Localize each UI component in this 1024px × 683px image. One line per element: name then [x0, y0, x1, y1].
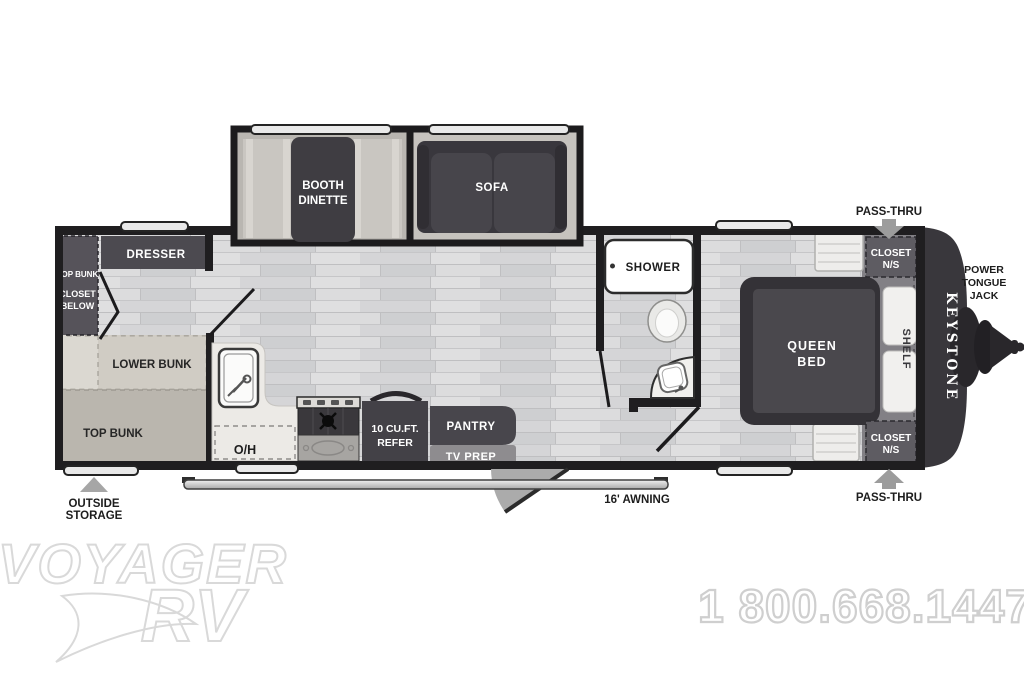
shower: SHOWER [605, 240, 693, 293]
booth-dinette-label-line1: BOOTH [302, 180, 344, 192]
entry-door-jamb [580, 461, 595, 470]
shelf-label: SHELF [900, 328, 912, 369]
window-bed-bottom [717, 466, 792, 475]
window-dinette-slide [251, 125, 391, 134]
bunk-closet-line1: TOP BUNK [57, 270, 99, 279]
closet-ns-bottom-line2: N/S [883, 445, 900, 456]
window-sofa-slide [429, 125, 569, 134]
closet-ns-top-line1: CLOSET [871, 248, 912, 259]
closet-ns-bottom-line1: CLOSET [871, 433, 912, 444]
pass-thru-bottom: PASS-THRU [856, 469, 922, 504]
ptj-line3: JACK [970, 290, 999, 302]
refer-label-line1: 10 CU.FT. [371, 423, 418, 435]
phone-watermark: 1 800.668.1447 [698, 580, 1024, 632]
queen-bed-label-line2: BED [797, 355, 826, 369]
bedroom-window-top [815, 233, 863, 271]
toilet-icon [648, 300, 686, 342]
queen-bed-label-line1: QUEEN [787, 339, 836, 353]
awning-bar [184, 480, 668, 489]
entry-door-swing [491, 469, 568, 512]
bedroom-window-bottom [813, 424, 859, 461]
outside-storage-arrow-icon [80, 477, 108, 492]
pantry-label: PANTRY [447, 421, 496, 433]
logo-rv-text: RV [141, 574, 249, 657]
overhead-label: O/H [234, 443, 256, 457]
closet-ns-top-line2: N/S [883, 260, 900, 271]
pass-thru-bottom-label: PASS-THRU [856, 492, 922, 504]
pass-thru-top-label: PASS-THRU [856, 206, 922, 218]
bunk-closet [57, 236, 98, 335]
rv-floorplan-image: KEYSTONE QUEEN BED CLOSET N/S CLOSET N/S [0, 0, 1024, 683]
outside-storage: OUTSIDE STORAGE [66, 477, 123, 522]
ptj-line1: POWER [964, 264, 1004, 276]
kitchen-sink-icon [219, 349, 258, 407]
outside-storage-line1: OUTSIDE [68, 498, 119, 510]
refer-label-line2: REFER [377, 437, 413, 449]
window-bed-top [716, 221, 792, 230]
bunk-closet-line3: BELOW [61, 301, 95, 311]
refrigerator: 10 CU.FT. REFER [362, 394, 428, 462]
outside-storage-line2: STORAGE [66, 510, 123, 522]
voyager-rv-logo: VOYAGER RV [0, 532, 288, 662]
queen-bed: QUEEN BED [740, 277, 880, 425]
pantry: PANTRY [430, 406, 516, 445]
awning: 16' AWNING [182, 477, 670, 506]
rear-top-bunk [57, 390, 207, 462]
bunk-closet-line2: CLOSET [59, 289, 96, 299]
booth-dinette-label-line2: DINETTE [298, 195, 348, 207]
window-rear-top [121, 222, 188, 231]
dresser-label: DRESSER [126, 249, 185, 261]
lower-bunk-label: LOWER BUNK [112, 359, 192, 371]
brand-vertical-label: KEYSTONE [943, 292, 959, 402]
ptj-line2: TONGUE [962, 277, 1007, 289]
shower-label: SHOWER [626, 262, 681, 274]
window-rear-bottom [64, 466, 138, 475]
window-kitchen-bottom [236, 464, 298, 473]
front-closet-bottom: CLOSET N/S [866, 421, 916, 463]
awning-label: 16' AWNING [604, 494, 670, 506]
front-closet-top: CLOSET N/S [866, 237, 916, 277]
pass-thru-bottom-arrow-icon [874, 469, 904, 483]
sofa-slideout: SOFA [410, 125, 580, 243]
booth-dinette-slideout: BOOTH DINETTE [234, 125, 410, 243]
top-bunk-label: TOP BUNK [83, 428, 143, 440]
shower-head-icon [610, 264, 615, 269]
power-tongue-jack-label: POWER TONGUE JACK [962, 264, 1007, 302]
stove-icon [297, 397, 360, 461]
sofa-label: SOFA [475, 182, 508, 194]
tongue-jack-cone [990, 325, 1013, 369]
